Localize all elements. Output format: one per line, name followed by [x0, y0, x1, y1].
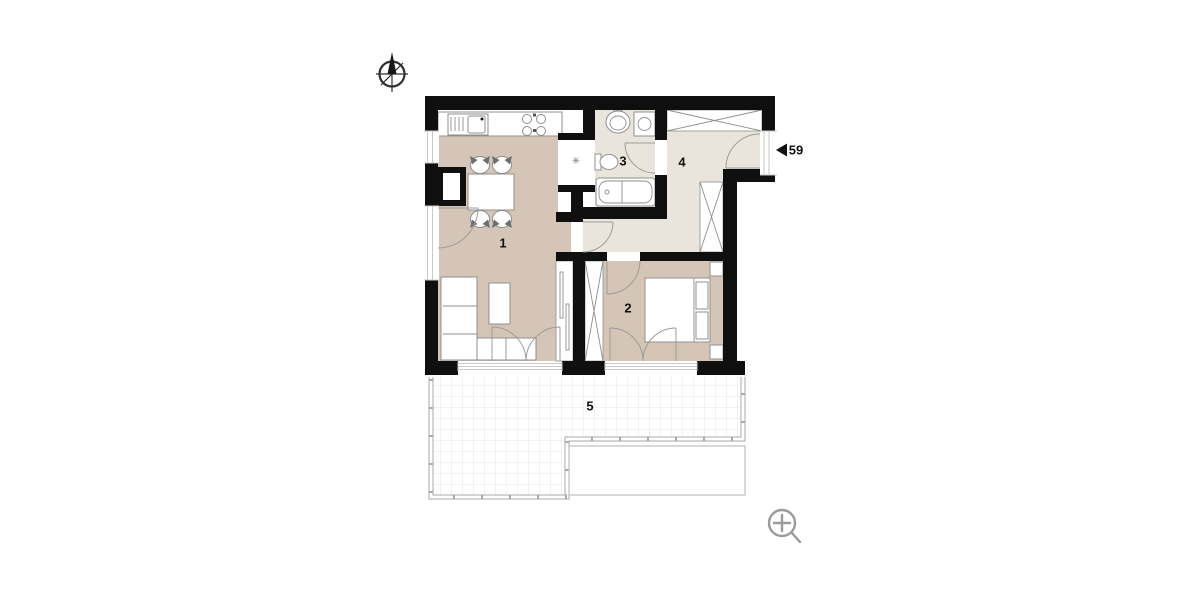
nightstand	[710, 262, 723, 276]
compass-icon	[376, 52, 408, 92]
terrace-area	[429, 377, 745, 499]
pillow	[696, 282, 708, 309]
room-label-bathroom: 3	[619, 155, 626, 168]
kitchen-counter	[438, 112, 562, 136]
washing-machine	[634, 112, 655, 136]
window-left	[424, 131, 439, 163]
coffee-table	[489, 283, 510, 324]
entrance-unit-number: 59	[789, 144, 803, 157]
nightstand	[710, 345, 723, 359]
floor-plan-canvas: 1 2 3 4 5 59 ✳	[0, 0, 1200, 600]
room-label-terrace: 5	[586, 400, 593, 413]
room-label-bedroom: 2	[624, 302, 631, 315]
zoom-in-icon[interactable]	[769, 510, 800, 542]
neighbor-terrace-outline	[569, 446, 745, 495]
toilet	[600, 155, 618, 170]
room-label-hallway: 4	[678, 156, 685, 169]
corridor-floor	[583, 219, 667, 252]
shaft-symbol: ✳	[572, 157, 580, 167]
dining-table	[468, 174, 514, 210]
pillow	[696, 312, 708, 339]
entrance-arrow-icon	[776, 144, 787, 157]
room-label-living: 1	[499, 237, 506, 250]
